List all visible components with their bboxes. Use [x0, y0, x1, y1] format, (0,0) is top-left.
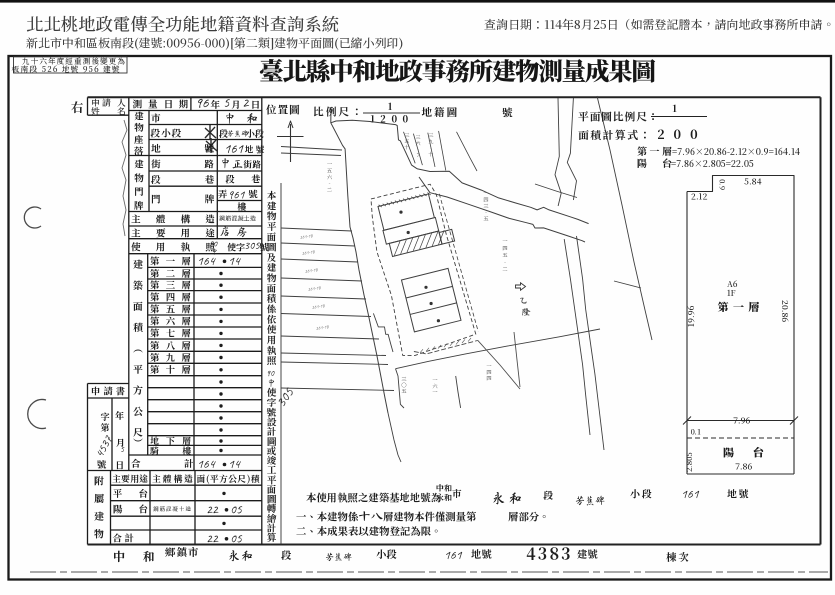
svg-text:22: 22	[206, 502, 219, 518]
svg-text:鋼筋混凝土造: 鋼筋混凝土造	[219, 214, 256, 223]
svg-text:街路: 街路	[244, 158, 262, 171]
svg-text:︵平方公: ︵平方公	[132, 340, 144, 418]
svg-text:14: 14	[228, 456, 241, 472]
svg-text:日: 日	[115, 458, 124, 472]
svg-text:計: 計	[125, 531, 135, 545]
svg-text:路: 路	[205, 157, 215, 171]
svg-text:號: 號	[205, 141, 215, 155]
svg-text:新北市中和區板南段(建號:00956-000)[第二類]建物: 新北市中和區板南段(建號:00956-000)[第二類]建物平面圖(已縮小列印)	[26, 35, 404, 52]
svg-text:年: 年	[115, 408, 125, 422]
svg-text:陽: 陽	[723, 445, 734, 461]
svg-text:永和: 永和	[435, 493, 452, 504]
svg-text:隆: 隆	[522, 307, 531, 317]
svg-text:地: 地	[150, 141, 161, 155]
svg-text:使用執照: 使用執照	[130, 239, 215, 253]
svg-text:面積計算式：: 面積計算式：	[578, 128, 652, 143]
svg-text:段小段: 段小段	[150, 126, 183, 140]
svg-text:尺︶: 尺︶	[133, 424, 143, 450]
svg-text:台: 台	[139, 486, 148, 500]
svg-text:261-18: 261-18	[299, 232, 313, 241]
svg-text:號: 號	[502, 106, 513, 121]
svg-text:建築面積: 建築面積	[132, 256, 144, 334]
svg-text:地號: 地號	[471, 546, 492, 561]
svg-text:161: 161	[224, 141, 244, 158]
svg-text:261-18: 261-18	[311, 302, 325, 311]
svg-text:90: 90	[266, 367, 275, 379]
svg-text:建號: 建號	[576, 546, 598, 561]
svg-text:14: 14	[228, 253, 241, 269]
svg-text:年: 年	[211, 97, 221, 111]
svg-text:20.86: 20.86	[779, 300, 791, 322]
svg-text:面(平方公尺)積: 面(平方公尺)積	[197, 472, 261, 485]
svg-text:第: 第	[101, 421, 110, 434]
svg-text:164: 164	[197, 253, 216, 269]
svg-text:牌: 牌	[205, 192, 215, 206]
svg-text:永和: 永和	[228, 550, 254, 562]
svg-text:計: 計	[184, 456, 194, 470]
svg-text:164: 164	[197, 456, 216, 472]
svg-text:0.9: 0.9	[717, 179, 728, 190]
svg-text:市: 市	[151, 111, 161, 125]
svg-text:鄉鎮市: 鄉鎮市	[165, 544, 200, 559]
svg-text:261-18: 261-18	[307, 284, 321, 293]
svg-text:棟次: 棟次	[666, 549, 690, 564]
svg-text:05: 05	[230, 502, 243, 518]
svg-text:弄: 弄	[218, 187, 227, 201]
svg-text:號設計圖或竣工平面圖轉繪計算: 號設計圖或竣工平面圖轉繪計算	[266, 405, 277, 544]
svg-text:261-18: 261-18	[301, 248, 315, 257]
svg-text:台: 台	[139, 502, 148, 516]
svg-text:一五六-二: 一五六-二	[327, 161, 333, 194]
svg-text:層部分。: 層部分。	[508, 509, 550, 524]
svg-text:161: 161	[681, 486, 700, 502]
svg-text:=7.86×2.805=22.05: =7.86×2.805=22.05	[671, 157, 754, 170]
svg-text:正: 正	[232, 159, 243, 170]
svg-text:樓: 樓	[238, 200, 247, 213]
svg-text:日: 日	[251, 97, 260, 111]
svg-text:號: 號	[249, 187, 258, 201]
svg-text:2.12: 2.12	[691, 191, 708, 203]
svg-text:96: 96	[195, 94, 210, 113]
svg-text:比例尺：: 比例尺：	[313, 105, 364, 120]
svg-text:查詢日期：114年8月25日（如需登記謄本，請向地政事務所申: 查詢日期：114年8月25日（如需登記謄本，請向地政事務所申請。）	[484, 16, 835, 33]
svg-text:段: 段	[225, 172, 235, 186]
svg-text:段: 段	[543, 487, 553, 502]
svg-text:街: 街	[150, 157, 161, 171]
svg-text:一四五-二: 一四五-二	[502, 238, 508, 273]
svg-text:建物門牌: 建物門牌	[134, 157, 144, 212]
svg-text:本建物平面圖及建物面積係依使用執照: 本建物平面圖及建物面積係依使用執照	[266, 188, 277, 367]
svg-text:平: 平	[113, 486, 123, 500]
svg-text:第十層: 第十層	[150, 362, 191, 376]
svg-text:板南段 526 地號 956 建號: 板南段 526 地號 956 建號	[11, 64, 120, 75]
svg-text:中: 中	[224, 113, 236, 125]
svg-text:305: 305	[272, 384, 299, 412]
svg-text:主體構造: 主體構造	[152, 472, 193, 485]
svg-text:和: 和	[143, 548, 155, 565]
svg-text:一、本建物係: 一、本建物係	[296, 509, 359, 524]
svg-text:十八: 十八	[358, 510, 384, 523]
svg-text:一六一: 一六一	[432, 377, 437, 396]
svg-text:台: 台	[753, 445, 764, 461]
svg-text:段: 段	[281, 547, 292, 562]
svg-text:主要用途: 主要用途	[112, 472, 148, 485]
svg-text:4537: 4537	[91, 432, 116, 461]
svg-text:和: 和	[246, 113, 258, 125]
svg-text:7.96: 7.96	[733, 415, 750, 427]
svg-text:月: 月	[232, 97, 241, 111]
svg-text:巷: 巷	[251, 172, 261, 186]
svg-text:主體構造: 主體構造	[131, 211, 215, 225]
svg-text:三〇五: 三〇五	[401, 376, 407, 395]
svg-text:261-18: 261-18	[304, 266, 318, 275]
svg-text:市: 市	[452, 486, 462, 500]
svg-text:巷: 巷	[205, 172, 215, 186]
svg-text:小段: 小段	[246, 126, 265, 140]
svg-text:芳蕉碑: 芳蕉碑	[575, 495, 605, 506]
svg-text:地 號: 地 號	[245, 144, 265, 156]
svg-text:右: 右	[71, 98, 84, 116]
svg-text:地籍圖: 地籍圖	[422, 105, 460, 120]
svg-text:鋼筋混凝土造: 鋼筋混凝土造	[153, 505, 191, 513]
svg-text:地號: 地號	[727, 486, 750, 501]
svg-text:騎: 騎	[150, 444, 159, 457]
svg-text:5.84: 5.84	[744, 176, 761, 188]
svg-text:0.1: 0.1	[691, 427, 701, 438]
svg-text:陽: 陽	[637, 155, 648, 170]
svg-text:合: 合	[131, 456, 141, 470]
svg-text:一四四: 一四四	[486, 363, 491, 382]
svg-text:使字: 使字	[226, 241, 245, 254]
svg-text:1F: 1F	[727, 288, 736, 299]
svg-text:中: 中	[113, 548, 125, 565]
svg-text:305: 305	[244, 239, 260, 253]
svg-text:附屬建物: 附屬建物	[94, 473, 105, 541]
svg-text:門: 門	[151, 192, 161, 206]
svg-text:7.86: 7.86	[735, 461, 752, 473]
svg-text:161: 161	[444, 547, 463, 563]
svg-text:店: 店	[219, 225, 230, 237]
svg-text:申請書: 申請書	[91, 384, 125, 398]
svg-text:乙: 乙	[519, 296, 527, 304]
svg-text:4383: 4383	[526, 542, 573, 565]
svg-text:5: 5	[223, 95, 230, 112]
svg-text:位置圖: 位置圖	[266, 103, 301, 118]
svg-text:小段: 小段	[376, 546, 397, 561]
svg-text:主要用途: 主要用途	[131, 225, 215, 239]
svg-text:臺北縣中和地政事務所建物測量成果圖: 臺北縣中和地政事務所建物測量成果圖	[259, 53, 656, 88]
svg-text:中: 中	[220, 157, 231, 169]
svg-text:小段: 小段	[630, 486, 653, 501]
svg-text:三九-十: 三九-十	[427, 132, 433, 158]
svg-text:261-18: 261-18	[315, 323, 329, 332]
svg-text:1 2 0 0: 1 2 0 0	[371, 112, 410, 126]
svg-text:1: 1	[672, 100, 677, 115]
svg-text:芳蕉碑: 芳蕉碑	[325, 552, 352, 562]
svg-text:2.805: 2.805	[684, 452, 695, 472]
svg-text:陽: 陽	[113, 502, 122, 516]
svg-text:段: 段	[150, 172, 161, 186]
svg-text:合: 合	[113, 531, 122, 545]
svg-text:二、本成果表以建物登記為限。: 二、本成果表以建物登記為限。	[296, 523, 441, 538]
svg-text:建物座落: 建物座落	[133, 109, 144, 158]
svg-text:19.96: 19.96	[685, 306, 697, 327]
svg-text:22: 22	[206, 531, 219, 547]
svg-text:層建物本件僅測量第: 層建物本件僅測量第	[383, 509, 477, 524]
svg-text:第 一 層: 第 一 層	[718, 299, 760, 315]
svg-text:平面圖比例尺：: 平面圖比例尺：	[578, 110, 659, 125]
svg-text:永和: 永和	[492, 491, 525, 505]
svg-text:一四三-五: 一四三-五	[483, 190, 489, 223]
svg-text:2 0 0: 2 0 0	[657, 125, 701, 143]
svg-text:北北桃地政電傳全功能地籍資料查詢系統: 北北桃地政電傳全功能地籍資料查詢系統	[26, 11, 339, 36]
svg-text:本使用執照之建築基地地號為: 本使用執照之建築基地地號為	[305, 490, 442, 505]
svg-text:房: 房	[236, 226, 247, 238]
svg-text:申請人姓名: 申請人姓名	[91, 96, 126, 118]
svg-text:05: 05	[230, 531, 243, 547]
svg-text:三五十: 三五十	[404, 132, 409, 151]
